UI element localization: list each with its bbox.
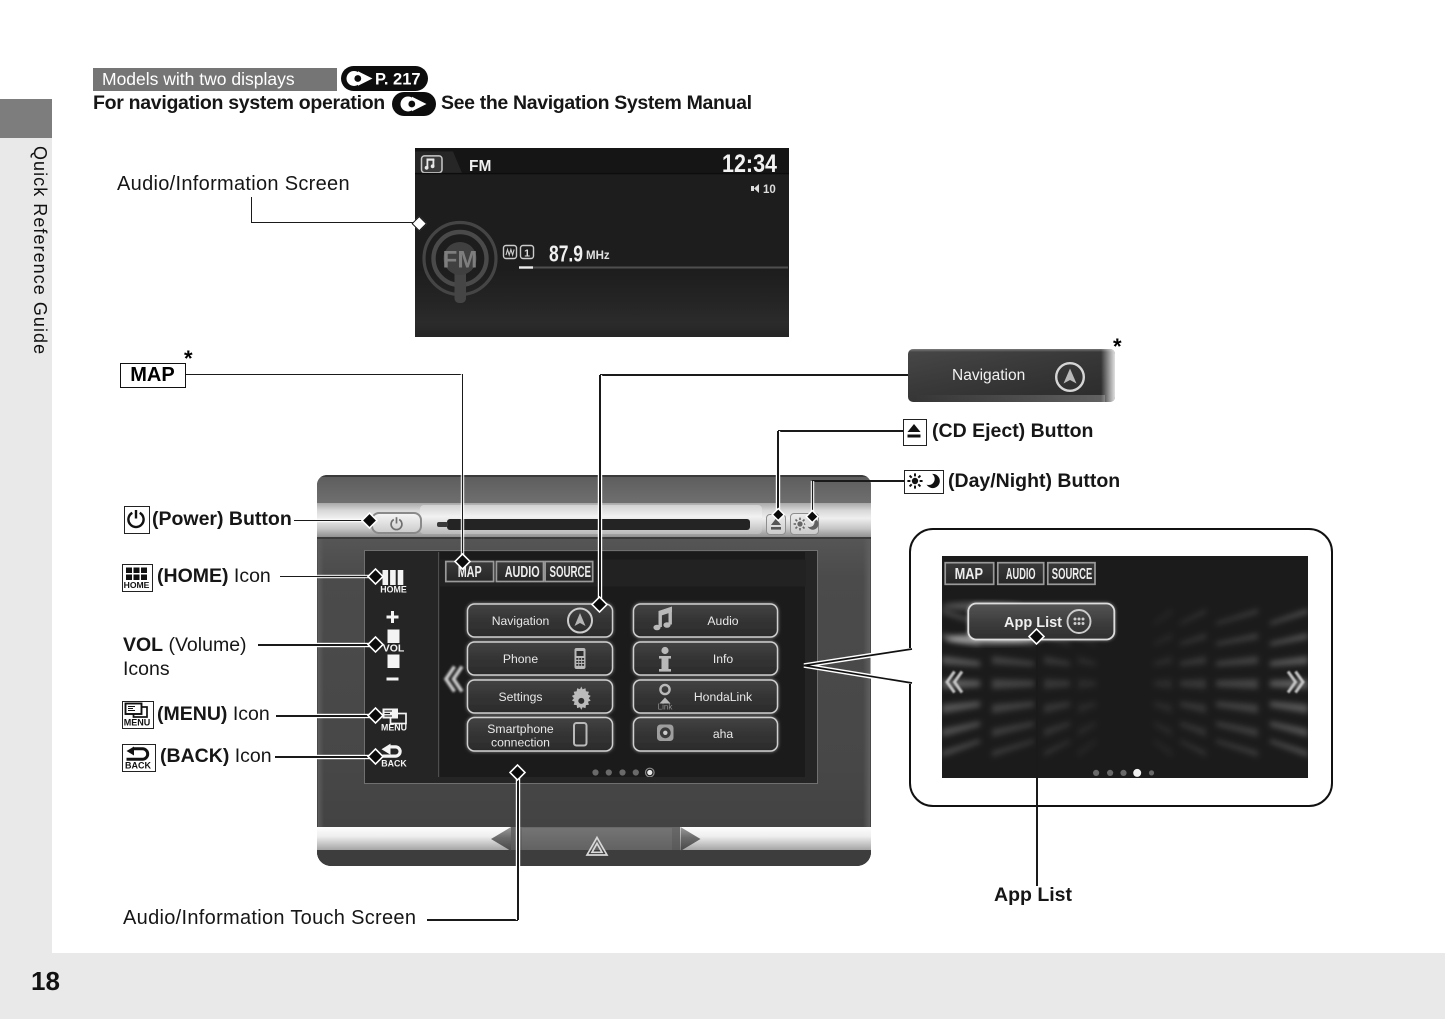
svg-text:MENU: MENU [124,718,151,728]
svg-text:SOURCE: SOURCE [549,564,591,581]
svg-text:HOME: HOME [124,580,150,590]
svg-text:SOURCE: SOURCE [1051,566,1092,583]
svg-text:connection: connection [491,736,550,750]
svg-text:aha: aha [712,727,733,741]
svg-text:MHz: MHz [586,250,610,262]
svg-text:HondaLink: HondaLink [693,690,752,704]
svg-text:Settings: Settings [498,690,542,704]
svg-text:AUDIO: AUDIO [1006,566,1036,583]
svg-text:BACK: BACK [381,758,407,768]
svg-text:1: 1 [524,247,530,259]
svg-text:FM: FM [469,158,491,175]
svg-text:Smartphone: Smartphone [487,722,554,736]
svg-text:Audio: Audio [707,614,738,628]
svg-text:AUDIO: AUDIO [504,564,539,581]
svg-text:12:34: 12:34 [722,149,777,177]
svg-text:FM: FM [443,246,478,273]
svg-text:Phone: Phone [502,652,537,666]
svg-text:HOME: HOME [380,584,407,594]
svg-text:VOL: VOL [382,642,404,654]
svg-text:MAP: MAP [954,566,982,583]
svg-text:87.9: 87.9 [549,240,583,266]
svg-text:P. 217: P. 217 [375,71,421,89]
svg-text:Link: Link [657,703,673,712]
svg-text:Info: Info [712,652,733,666]
svg-text:App List: App List [1004,615,1062,631]
svg-text:BACK: BACK [125,761,151,771]
svg-text:10: 10 [763,184,776,196]
svg-text:Navigation: Navigation [491,614,549,628]
